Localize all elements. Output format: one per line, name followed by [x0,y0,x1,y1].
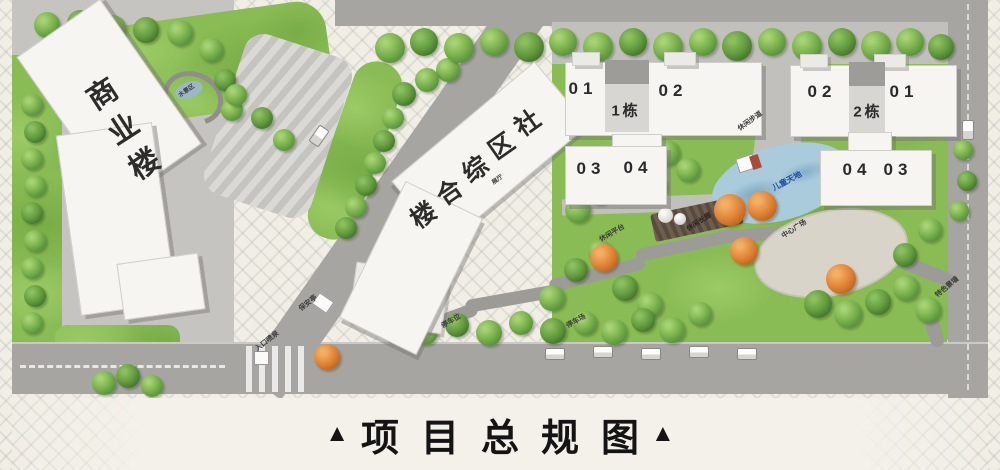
tower1-unit: 03 [577,159,606,179]
tree-icon [335,217,357,239]
tree-icon [355,174,377,196]
tree-icon [21,148,43,170]
tower2-name: 2栋 [853,101,882,122]
tree-icon [382,107,404,129]
tree-icon [659,317,685,343]
tree-icon [92,371,116,395]
tree-icon [410,28,438,56]
tree-icon [540,318,566,344]
tower2-unit: 02 [808,82,837,102]
page-title: 项目总规图 [361,407,661,462]
tree-icon [480,28,508,56]
tree-icon [834,300,862,328]
car-icon [737,348,757,360]
tree-icon [21,94,43,116]
car-icon [545,348,565,360]
tree-icon [24,175,46,197]
tree-icon [828,28,856,56]
tree-icon [21,202,43,224]
tree-icon [915,297,941,323]
tree-icon [747,191,777,221]
tree-icon [314,344,340,370]
car-icon [962,120,974,140]
pergola-dome [658,208,673,223]
tree-icon [896,28,924,56]
east-lane-divider [967,4,969,390]
tree-icon [714,194,746,226]
tower2-unit: 04 [843,160,872,180]
tree-icon [167,20,193,46]
left-border-pattern [0,0,12,470]
site-plan-image: 商业楼 社区综合楼 01 02 1栋 03 04 02 01 2栋 04 03 … [0,0,1000,470]
tree-icon [865,289,891,315]
title-band: ▲ 项目总规图 ▲ [0,398,1000,470]
tree-icon [722,31,752,61]
tree-icon [24,230,46,252]
tree-icon [893,243,917,267]
tree-icon [893,275,919,301]
tree-icon [949,201,969,221]
tree-icon [601,319,627,345]
entrance-booth [254,351,269,365]
tree-icon [509,311,533,335]
tree-icon [21,312,43,334]
car-icon [689,346,709,358]
tower2-connector [848,132,892,152]
tower1-unit: 01 [569,79,598,99]
commercial-building-wing [116,253,205,321]
tree-icon [444,33,474,63]
tower2-core [849,62,885,86]
right-border-pattern [988,0,1000,470]
tree-icon [953,140,973,160]
tree-icon [251,107,273,129]
tree-icon [564,258,588,282]
tree-icon [730,237,758,265]
tree-icon [619,28,647,56]
tree-icon [116,364,140,388]
tree-icon [373,130,395,152]
title-triangle-left-icon: ▲ [325,420,349,448]
tree-icon [21,257,43,279]
tree-icon [514,32,544,62]
pergola-dome [674,213,686,225]
tree-icon [392,82,416,106]
tree-icon [273,129,295,151]
tree-icon [631,308,655,332]
tree-icon [141,375,163,397]
tower1-roof-notch [664,52,696,66]
tree-icon [345,196,367,218]
tree-icon [957,171,977,191]
tower1-core [605,60,649,84]
tree-icon [364,152,386,174]
tree-icon [612,275,638,301]
tree-icon [375,33,405,63]
tree-icon [918,218,942,242]
tower1-unit: 02 [659,81,688,101]
tree-icon [415,68,439,92]
tree-icon [199,38,223,62]
tree-icon [24,285,46,307]
tower1-name: 1栋 [611,100,640,121]
tree-icon [225,84,247,106]
car-icon [593,346,613,358]
tree-icon [133,17,159,43]
tree-icon [826,264,856,294]
tree-icon [758,28,786,56]
tree-icon [539,285,565,311]
tower2-south-wing [820,150,932,206]
tower2-unit: 03 [884,160,913,180]
tree-icon [476,320,502,346]
tower2-roof-notch [800,54,828,68]
tree-icon [804,290,832,318]
title-triangle-right-icon: ▲ [651,420,675,448]
tower1-roof-notch [572,52,600,66]
tower2-unit: 01 [890,82,919,102]
tree-icon [676,158,700,182]
east-road [948,0,990,398]
tree-icon [590,244,618,272]
tower1-unit: 04 [624,158,653,178]
tree-icon [24,121,46,143]
tree-icon [928,34,954,60]
tree-icon [688,302,712,326]
car-icon [641,348,661,360]
